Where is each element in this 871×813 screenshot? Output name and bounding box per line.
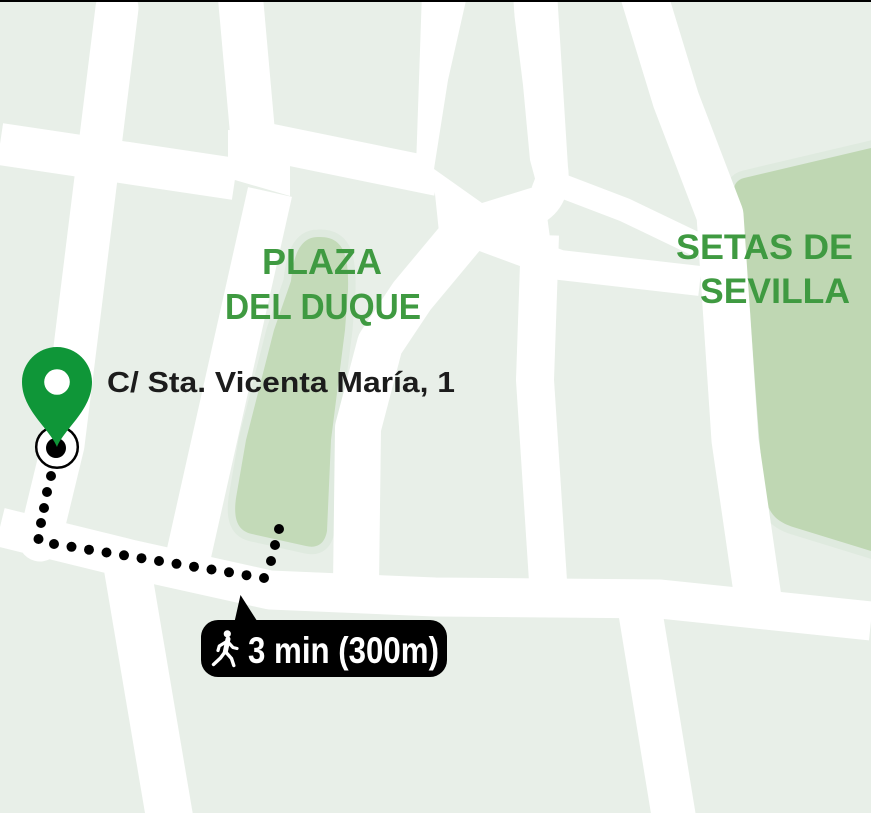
svg-text:DEL DUQUE: DEL DUQUE: [225, 286, 421, 327]
svg-text:C/ Sta. Vicenta María, 1: C/ Sta. Vicenta María, 1: [107, 367, 455, 399]
svg-text:SETAS DE: SETAS DE: [676, 228, 853, 267]
svg-text:SEVILLA: SEVILLA: [700, 272, 850, 311]
svg-text:3 min (300m): 3 min (300m): [248, 630, 439, 671]
svg-text:PLAZA: PLAZA: [262, 241, 382, 282]
